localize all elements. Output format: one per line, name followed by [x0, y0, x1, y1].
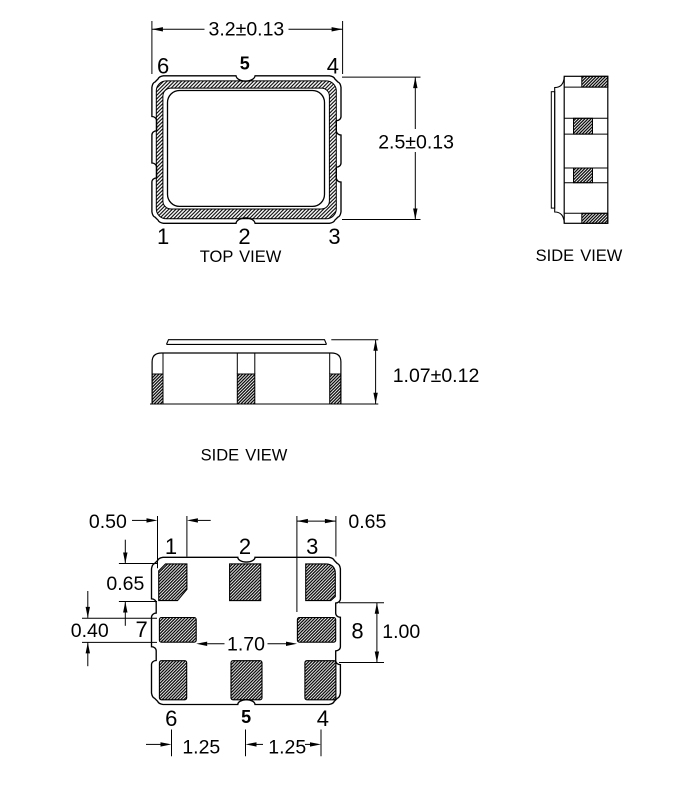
svg-text:1: 1 [157, 224, 169, 249]
svg-text:SIDE VIEW: SIDE VIEW [201, 447, 288, 465]
svg-text:TOP VIEW: TOP VIEW [200, 248, 282, 266]
svg-text:5: 5 [240, 54, 250, 74]
svg-text:1.25: 1.25 [268, 737, 306, 759]
svg-text:0.65: 0.65 [106, 573, 144, 595]
svg-text:4: 4 [327, 54, 339, 79]
svg-text:0.65: 0.65 [348, 511, 386, 533]
svg-text:6: 6 [165, 706, 177, 731]
svg-text:1.00: 1.00 [382, 621, 420, 643]
svg-text:3: 3 [306, 534, 318, 559]
svg-text:2.5±0.13: 2.5±0.13 [378, 132, 454, 154]
svg-text:1.70: 1.70 [227, 634, 265, 656]
svg-text:2: 2 [238, 224, 250, 249]
svg-text:1.25: 1.25 [182, 737, 220, 759]
svg-text:5: 5 [241, 707, 251, 727]
svg-text:4: 4 [317, 706, 329, 731]
svg-text:7: 7 [135, 617, 147, 642]
svg-text:1: 1 [165, 534, 177, 559]
svg-text:0.40: 0.40 [71, 620, 109, 642]
svg-text:2: 2 [239, 534, 251, 559]
svg-text:8: 8 [351, 619, 363, 644]
svg-text:6: 6 [157, 54, 169, 79]
svg-text:1.07±0.12: 1.07±0.12 [393, 365, 480, 387]
svg-text:0.50: 0.50 [89, 511, 127, 533]
svg-text:3.2±0.13: 3.2±0.13 [209, 18, 285, 40]
svg-text:3: 3 [328, 224, 340, 249]
svg-text:SIDE VIEW: SIDE VIEW [536, 247, 623, 265]
